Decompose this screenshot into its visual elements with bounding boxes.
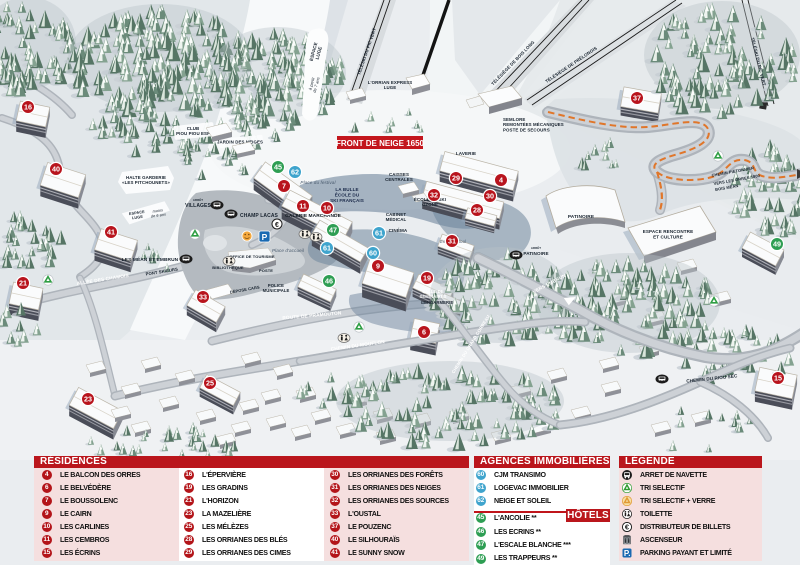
- svg-text:P.: P.: [624, 549, 631, 558]
